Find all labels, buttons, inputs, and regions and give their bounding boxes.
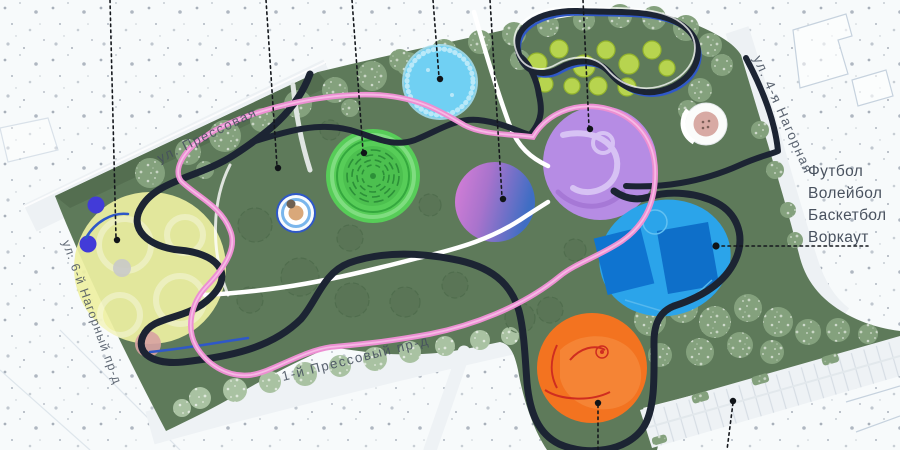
blue-dot-feature-2 [80,236,97,253]
spiral-plaza-small [277,194,315,232]
legend-item-volleyball: Волейбол [808,185,882,202]
legend-item-football: Футбол [808,163,863,180]
legend-item-basketball: Баскетбол [808,207,887,224]
park-master-plan: ул. Прессовая ул. 4-я Нагорная ул. 6-й Н… [0,0,900,450]
blue-dot-feature-1 [88,197,105,214]
orange-zone [537,313,647,423]
site-plan-canvas: ул. Прессовая ул. 4-я Нагорная ул. 6-й Н… [0,0,900,450]
court-rect-2 [657,222,719,294]
legend-item-workout: Воркаут [808,229,869,246]
purple-swirl-zone [543,106,657,220]
gray-feature [113,259,131,277]
pink-blue-gradient-zone [455,162,535,242]
